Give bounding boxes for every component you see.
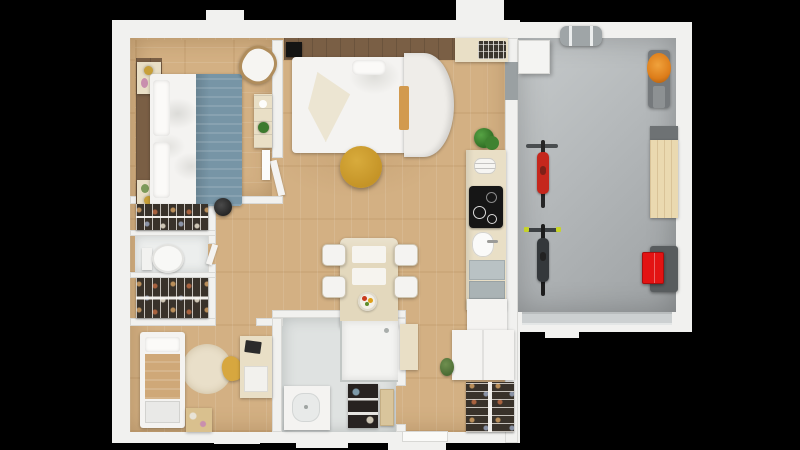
bike-grip-icon <box>524 227 529 232</box>
black-bicycle <box>522 220 562 298</box>
placemat <box>352 246 386 263</box>
wall-above-wc <box>130 230 216 236</box>
toy-box <box>186 408 212 432</box>
dining-chair <box>394 276 418 298</box>
workbench <box>650 140 678 218</box>
bed-pillow <box>352 60 386 75</box>
bed-pillow <box>153 80 170 136</box>
toilet-bowl <box>152 244 184 273</box>
dresser-plant-icon <box>258 122 269 133</box>
toilet-tank <box>142 248 152 270</box>
single-bed-pillow <box>145 337 180 352</box>
mower-body <box>647 53 671 83</box>
fruit-icon <box>362 296 367 301</box>
bedroom-window-bay <box>206 10 244 30</box>
dish-rack <box>478 41 506 59</box>
bed-pillow <box>153 142 170 198</box>
chimney-block <box>456 0 504 26</box>
front-door <box>402 431 448 442</box>
wardrobe-bottom <box>136 278 208 318</box>
shower-tray <box>340 321 398 382</box>
bed-foot-box <box>145 401 180 423</box>
burner-icon <box>487 214 497 224</box>
lawn-mower <box>646 50 672 110</box>
floor-plan-canvas <box>0 0 800 450</box>
roof-cargo-box <box>560 26 602 46</box>
laptop-icon <box>244 340 262 354</box>
bathroom-door-leaf <box>380 389 394 426</box>
wall-kids-bathroom <box>272 318 282 432</box>
garage-cabinet <box>518 40 550 74</box>
desk-drawer <box>244 366 268 392</box>
bike-saddle <box>540 166 546 175</box>
hall-tall-cabinet <box>400 324 418 370</box>
single-bed-blanket <box>145 354 180 399</box>
burner-icon <box>486 192 497 203</box>
window-sill-step-mid <box>296 430 348 448</box>
vase-flowers-icon <box>141 78 148 88</box>
plant-leaves-icon <box>485 136 499 150</box>
garage-side-door <box>505 62 518 100</box>
red-bicycle <box>522 136 562 210</box>
mower-handle <box>653 86 665 108</box>
faucet-icon <box>487 240 498 243</box>
mustard-pouf <box>340 146 382 188</box>
garage-door <box>522 312 672 325</box>
dining-chair <box>322 276 346 298</box>
entry-cabinet <box>452 330 514 380</box>
entry-plant-icon <box>440 358 454 376</box>
workbench-vise <box>650 126 678 140</box>
fruit-icon <box>365 302 369 306</box>
dresser-lamp-icon <box>259 100 267 108</box>
bike-saddle <box>540 252 546 261</box>
wall-above-kids-left <box>130 318 216 326</box>
garage-door-sill <box>545 330 579 338</box>
blue-blanket <box>196 74 242 206</box>
entry-closet <box>466 382 514 432</box>
bathroom-shelf <box>348 384 378 428</box>
leaning-mirror <box>262 150 270 180</box>
red-toolbox <box>642 252 664 284</box>
black-side-stool <box>214 198 232 216</box>
wall-tv <box>286 42 302 57</box>
bike-grip-icon <box>556 227 561 232</box>
headboard-accent-bar <box>399 86 409 130</box>
dining-chair <box>322 244 346 266</box>
shower-drain-icon <box>384 328 389 333</box>
placemat <box>352 268 386 285</box>
kitchen-sink <box>472 232 494 257</box>
dining-chair <box>394 244 418 266</box>
burner-icon <box>473 206 486 219</box>
plant-pot-icon <box>141 184 149 193</box>
dishwasher <box>469 260 505 280</box>
under-counter-cabinet <box>469 281 505 299</box>
sink-drain-icon <box>304 405 308 409</box>
counter-end <box>467 299 507 330</box>
toaster <box>474 158 496 174</box>
wardrobe-top <box>136 204 208 230</box>
